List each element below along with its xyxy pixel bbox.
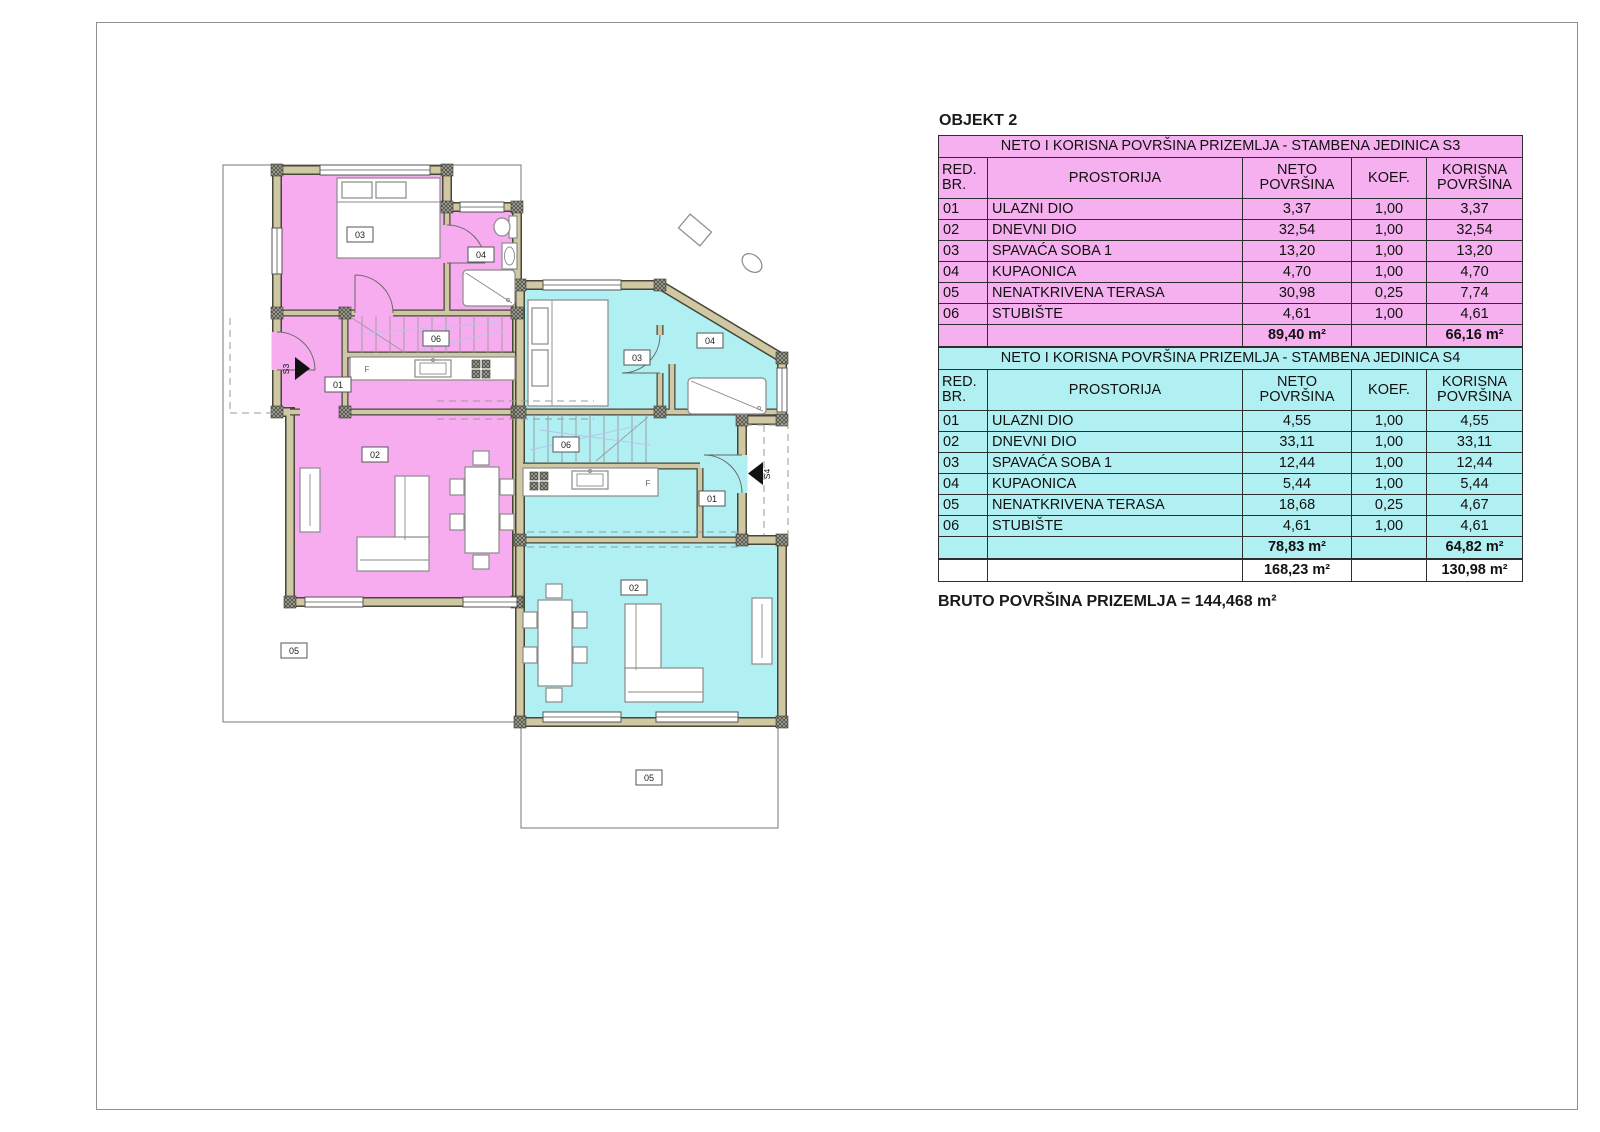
cell-neto: 3,37: [1243, 199, 1352, 220]
fridge-label-s4: F: [646, 479, 651, 488]
svg-text:04: 04: [705, 336, 715, 346]
cell-koef: 1,00: [1352, 474, 1427, 495]
bed-s4: [528, 300, 608, 406]
room-label-s3-bath: 04: [468, 247, 494, 262]
unit-label-s4: S4: [762, 469, 772, 480]
cell-room: SPAVAĆA SOBA 1: [988, 241, 1243, 262]
kitchen-s3: [350, 357, 515, 380]
fridge-label-s3: F: [365, 365, 370, 374]
area-tables: OBJEKT 2 NETO I KORISNA POVRŠINA PRIZEML…: [938, 112, 1522, 611]
col-header-korisna: KORISNA POVRŠINA: [1427, 158, 1523, 199]
cell-br: 06: [939, 516, 988, 537]
cell-korisna: 4,67: [1427, 495, 1523, 516]
empty-cell: [988, 537, 1243, 560]
table-s4-title: NETO I KORISNA POVRŠINA PRIZEMLJA - STAM…: [939, 348, 1523, 370]
cell-neto: 32,54: [1243, 220, 1352, 241]
table-s4-header-row: RED. BR. PROSTORIJA NETO POVRŠINA KOEF. …: [939, 370, 1523, 411]
svg-text:06: 06: [431, 334, 441, 344]
room-label-s4-bath: 04: [697, 333, 723, 348]
toilet-s3: [494, 216, 517, 238]
cell-br: 01: [939, 411, 988, 432]
total-korisna-s4: 64,82 m²: [1427, 537, 1523, 560]
room-label-s3-terrace: 05: [281, 643, 307, 658]
shower-s3: [463, 270, 515, 306]
cell-korisna: 13,20: [1427, 241, 1523, 262]
cell-neto: 4,61: [1243, 304, 1352, 325]
sink-s3: [502, 243, 517, 269]
cell-br: 01: [939, 199, 988, 220]
table-row: 03 SPAVAĆA SOBA 1 12,44 1,00 12,44: [939, 453, 1523, 474]
col-header-korisna: KORISNA POVRŠINA: [1427, 370, 1523, 411]
cell-korisna: 4,61: [1427, 304, 1523, 325]
table-row: 01 ULAZNI DIO 3,37 1,00 3,37: [939, 199, 1523, 220]
unit-label-s3: S3: [281, 364, 291, 375]
table-s3-header-row: RED. BR. PROSTORIJA NETO POVRŠINA KOEF. …: [939, 158, 1523, 199]
table-row: 02 DNEVNI DIO 32,54 1,00 32,54: [939, 220, 1523, 241]
table-s4: NETO I KORISNA POVRŠINA PRIZEMLJA - STAM…: [938, 347, 1523, 582]
svg-text:02: 02: [629, 583, 639, 593]
cell-neto: 4,61: [1243, 516, 1352, 537]
cell-korisna: 33,11: [1427, 432, 1523, 453]
cell-room: STUBIŠTE: [988, 304, 1243, 325]
svg-text:05: 05: [644, 773, 654, 783]
shower-s4: [688, 378, 766, 414]
cell-br: 03: [939, 453, 988, 474]
cell-korisna: 32,54: [1427, 220, 1523, 241]
cell-koef: 1,00: [1352, 220, 1427, 241]
cell-koef: 1,00: [1352, 262, 1427, 283]
cell-room: SPAVAĆA SOBA 1: [988, 453, 1243, 474]
empty-cell: [988, 559, 1243, 582]
grand-total-neto: 168,23 m²: [1243, 559, 1352, 582]
room-label-s3-living: 02: [362, 447, 388, 462]
table-row: 05 NENATKRIVENA TERASA 18,68 0,25 4,67: [939, 495, 1523, 516]
room-label-s3-entry: 01: [325, 377, 351, 392]
svg-text:03: 03: [355, 230, 365, 240]
total-neto-s4: 78,83 m²: [1243, 537, 1352, 560]
room-label-s3-bedroom: 03: [347, 227, 373, 242]
empty-cell: [939, 325, 988, 347]
cell-br: 02: [939, 220, 988, 241]
table-s3-total-row: 89,40 m² 66,16 m²: [939, 325, 1523, 347]
cell-korisna: 4,70: [1427, 262, 1523, 283]
sink-s4: [678, 214, 711, 246]
empty-cell: [988, 325, 1243, 347]
room-label-s4-terrace: 05: [636, 770, 662, 785]
table-s3-title-row: NETO I KORISNA POVRŠINA PRIZEMLJA - STAM…: [939, 136, 1523, 158]
cell-room: ULAZNI DIO: [988, 411, 1243, 432]
cell-room: KUPAONICA: [988, 262, 1243, 283]
col-header-red-br: RED. BR.: [939, 158, 988, 199]
kitchen-s4: [523, 468, 658, 496]
table-row: 01 ULAZNI DIO 4,55 1,00 4,55: [939, 411, 1523, 432]
cell-neto: 4,70: [1243, 262, 1352, 283]
cell-neto: 12,44: [1243, 453, 1352, 474]
cell-room: NENATKRIVENA TERASA: [988, 495, 1243, 516]
cell-br: 03: [939, 241, 988, 262]
cell-neto: 13,20: [1243, 241, 1352, 262]
svg-text:06: 06: [561, 440, 571, 450]
table-row: 05 NENATKRIVENA TERASA 30,98 0,25 7,74: [939, 283, 1523, 304]
cell-koef: 1,00: [1352, 516, 1427, 537]
cell-br: 06: [939, 304, 988, 325]
table-row: 06 STUBIŠTE 4,61 1,00 4,61: [939, 304, 1523, 325]
empty-cell: [1352, 537, 1427, 560]
grand-total-row: 168,23 m² 130,98 m²: [939, 559, 1523, 582]
cell-room: KUPAONICA: [988, 474, 1243, 495]
toilet-s4: [738, 250, 765, 276]
col-header-koef: KOEF.: [1352, 370, 1427, 411]
cell-neto: 33,11: [1243, 432, 1352, 453]
cell-br: 05: [939, 495, 988, 516]
col-header-prostorija: PROSTORIJA: [988, 370, 1243, 411]
cell-koef: 1,00: [1352, 241, 1427, 262]
bruto-area-total: BRUTO POVRŠINA PRIZEMLJA = 144,468 m²: [938, 593, 1522, 611]
drawing-sheet: F: [0, 0, 1600, 1132]
cell-koef: 0,25: [1352, 283, 1427, 304]
table-row: 03 SPAVAĆA SOBA 1 13,20 1,00 13,20: [939, 241, 1523, 262]
cell-koef: 1,00: [1352, 432, 1427, 453]
cell-korisna: 7,74: [1427, 283, 1523, 304]
cell-br: 04: [939, 474, 988, 495]
cell-korisna: 3,37: [1427, 199, 1523, 220]
svg-text:04: 04: [476, 250, 486, 260]
cell-neto: 30,98: [1243, 283, 1352, 304]
empty-cell: [1352, 559, 1427, 582]
table-row: 04 KUPAONICA 4,70 1,00 4,70: [939, 262, 1523, 283]
cell-neto: 4,55: [1243, 411, 1352, 432]
table-s3-title: NETO I KORISNA POVRŠINA PRIZEMLJA - STAM…: [939, 136, 1523, 158]
cell-koef: 1,00: [1352, 304, 1427, 325]
tv-board-s3: [300, 468, 320, 532]
cell-room: DNEVNI DIO: [988, 220, 1243, 241]
empty-cell: [939, 537, 988, 560]
cell-neto: 18,68: [1243, 495, 1352, 516]
cell-br: 02: [939, 432, 988, 453]
room-label-s3-stairs: 06: [423, 331, 449, 346]
col-header-koef: KOEF.: [1352, 158, 1427, 199]
svg-text:02: 02: [370, 450, 380, 460]
table-s4-total-row: 78,83 m² 64,82 m²: [939, 537, 1523, 560]
table-row: 02 DNEVNI DIO 33,11 1,00 33,11: [939, 432, 1523, 453]
cell-br: 05: [939, 283, 988, 304]
svg-text:05: 05: [289, 646, 299, 656]
cell-koef: 1,00: [1352, 453, 1427, 474]
stairs-s4: [530, 415, 650, 462]
svg-text:01: 01: [707, 494, 717, 504]
cell-korisna: 5,44: [1427, 474, 1523, 495]
table-row: 04 KUPAONICA 5,44 1,00 5,44: [939, 474, 1523, 495]
cell-br: 04: [939, 262, 988, 283]
cell-neto: 5,44: [1243, 474, 1352, 495]
cell-room: NENATKRIVENA TERASA: [988, 283, 1243, 304]
empty-cell: [939, 559, 988, 582]
cell-koef: 1,00: [1352, 411, 1427, 432]
cell-korisna: 12,44: [1427, 453, 1523, 474]
cell-korisna: 4,55: [1427, 411, 1523, 432]
tv-board-s4: [752, 598, 772, 664]
table-s4-title-row: NETO I KORISNA POVRŠINA PRIZEMLJA - STAM…: [939, 348, 1523, 370]
bed-s3: [337, 178, 440, 258]
cell-koef: 1,00: [1352, 199, 1427, 220]
cell-room: ULAZNI DIO: [988, 199, 1243, 220]
col-header-prostorija: PROSTORIJA: [988, 158, 1243, 199]
cell-koef: 0,25: [1352, 495, 1427, 516]
room-label-s4-bedroom: 03: [624, 350, 650, 365]
total-korisna-s3: 66,16 m²: [1427, 325, 1523, 347]
room-label-s4-entry: 01: [699, 491, 725, 506]
svg-text:01: 01: [333, 380, 343, 390]
floor-plan: F: [0, 0, 850, 1132]
page-title: OBJEKT 2: [939, 112, 1522, 130]
total-neto-s3: 89,40 m²: [1243, 325, 1352, 347]
cell-korisna: 4,61: [1427, 516, 1523, 537]
col-header-neto: NETO POVRŠINA: [1243, 370, 1352, 411]
room-label-s4-living: 02: [621, 580, 647, 595]
cell-room: STUBIŠTE: [988, 516, 1243, 537]
cell-room: DNEVNI DIO: [988, 432, 1243, 453]
room-label-s4-stairs: 06: [553, 437, 579, 452]
table-s3: NETO I KORISNA POVRŠINA PRIZEMLJA - STAM…: [938, 135, 1523, 347]
svg-text:03: 03: [632, 353, 642, 363]
col-header-neto: NETO POVRŠINA: [1243, 158, 1352, 199]
grand-total-korisna: 130,98 m²: [1427, 559, 1523, 582]
col-header-red-br: RED. BR.: [939, 370, 988, 411]
empty-cell: [1352, 325, 1427, 347]
table-row: 06 STUBIŠTE 4,61 1,00 4,61: [939, 516, 1523, 537]
